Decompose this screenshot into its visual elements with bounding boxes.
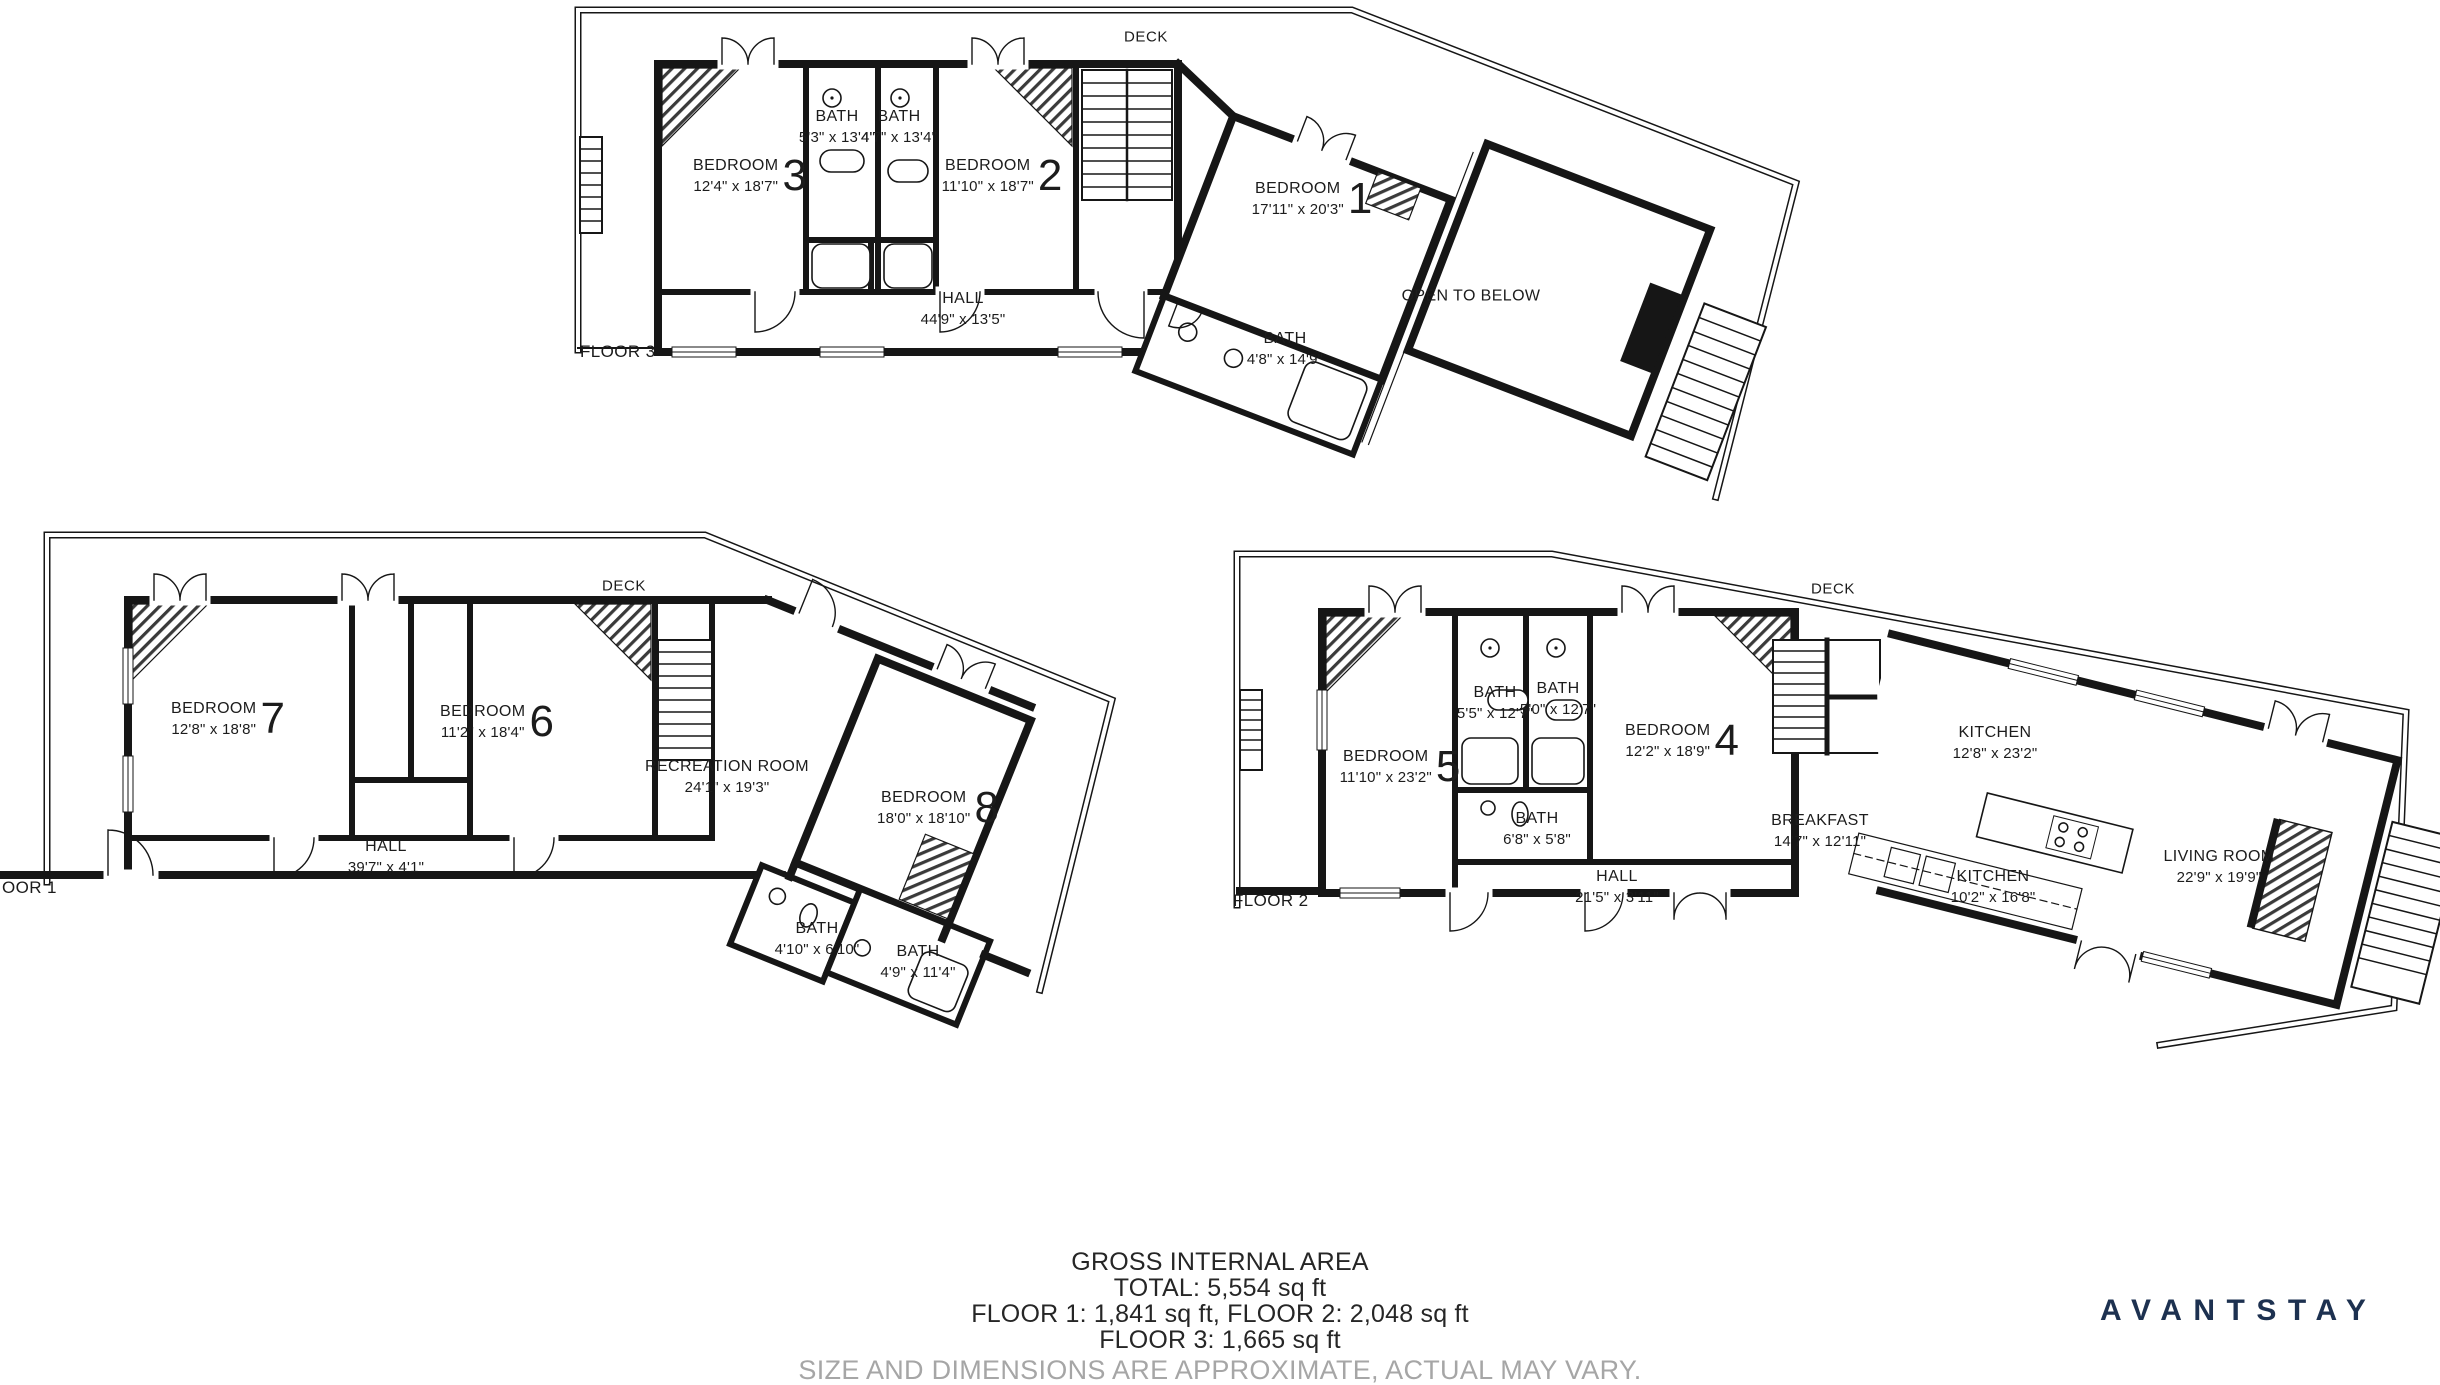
room-label-open-to-below: OPEN TO BELOW <box>1402 287 1541 308</box>
floor3-deck-stairs <box>580 137 602 233</box>
room-label-kitchen-upper: KITCHEN 12'8" x 23'2" <box>1953 723 2038 763</box>
room-number: 4 <box>1715 722 1739 759</box>
footer-floor1-floor2: FLOOR 1: 1,841 sq ft, FLOOR 2: 2,048 sq … <box>0 1301 2440 1327</box>
floor2-tag: FLOOR 2 <box>1233 891 1309 911</box>
room-label-bath-f2c: BATH 6'8" x 5'8" <box>1503 809 1571 849</box>
room-dims: 10'2" x 16'8" <box>1951 888 2036 908</box>
room-number: 1 <box>1348 180 1372 217</box>
room-number: 3 <box>783 157 807 194</box>
footer-title: GROSS INTERNAL AREA <box>0 1249 2440 1275</box>
room-dims: 4'9" x 11'4" <box>880 963 955 983</box>
room-number: 8 <box>974 789 998 826</box>
room-number: 6 <box>530 703 554 740</box>
room-label-bath-f3c: BATH 4'8" x 14'9" <box>1247 329 1323 369</box>
room-label-bedroom-2: BEDROOM 11'10" x 18'7" 2 <box>942 156 1063 196</box>
room-dims: 12'4" x 18'7" <box>693 177 778 197</box>
room-name: BEDROOM <box>877 788 970 809</box>
room-name: BEDROOM <box>171 699 256 720</box>
room-dims: 4'7" x 13'4" <box>861 128 937 148</box>
room-dims: 17'11" x 20'3" <box>1252 200 1344 220</box>
room-dims: 21'5" x 3'11" <box>1575 888 1659 908</box>
room-number: 2 <box>1038 157 1062 194</box>
room-name: HALL <box>348 837 424 858</box>
room-dims: 14'7" x 12'11" <box>1771 832 1869 852</box>
room-name: OPEN TO BELOW <box>1402 287 1541 308</box>
floor-plan-canvas <box>0 0 2440 1372</box>
room-dims: 39'7" x 4'1" <box>348 858 424 878</box>
room-label-bedroom-8: BEDROOM 18'0" x 18'10" 8 <box>877 788 999 828</box>
floor2-staircase <box>1773 640 1880 753</box>
floor3-plan <box>578 10 1796 576</box>
room-label-bedroom-4: BEDROOM 12'2" x 18'9" 4 <box>1625 721 1739 761</box>
room-label-kitchen-lower: KITCHEN 10'2" x 16'8" <box>1951 867 2036 907</box>
room-name: KITCHEN <box>1951 867 2036 888</box>
room-label-bedroom-1: BEDROOM 17'11" x 20'3" 1 <box>1252 179 1373 219</box>
room-dims: 18'0" x 18'10" <box>877 809 970 829</box>
floor2-wing <box>1824 607 2440 1051</box>
room-label-living-room: LIVING ROOM 22'9" x 19'9" <box>2163 847 2274 887</box>
room-label-bedroom-5: BEDROOM 11'10" x 23'2" 5 <box>1340 747 1461 787</box>
room-name: KITCHEN <box>1953 723 2038 744</box>
footer-floor3: FLOOR 3: 1,665 sq ft <box>0 1327 2440 1353</box>
gross-internal-area-block: GROSS INTERNAL AREA TOTAL: 5,554 sq ft F… <box>0 1249 2440 1385</box>
room-dims: 5'0" x 12'7" <box>1520 700 1596 720</box>
room-label-hall-f2: HALL 21'5" x 3'11" <box>1575 867 1659 907</box>
room-dims: 11'10" x 23'2" <box>1340 768 1432 788</box>
room-label-breakfast: BREAKFAST 14'7" x 12'11" <box>1771 811 1869 851</box>
room-name: BEDROOM <box>1252 179 1344 200</box>
floor3-staircase <box>1082 70 1172 200</box>
room-name: BATH <box>775 919 860 940</box>
room-label-hall-f3: HALL 44'9" x 13'5" <box>921 289 1006 329</box>
room-dims: 4'10" x 6'10" <box>775 940 860 960</box>
footer-disclaimer: SIZE AND DIMENSIONS ARE APPROXIMATE, ACT… <box>0 1355 2440 1385</box>
room-name: BATH <box>1503 809 1571 830</box>
room-name: BATH <box>861 107 937 128</box>
room-dims: 22'9" x 19'9" <box>2163 868 2274 888</box>
room-label-bedroom-7: BEDROOM 12'8" x 18'8" 7 <box>171 699 285 739</box>
room-name: LIVING ROOM <box>2163 847 2274 868</box>
room-dims: 6'8" x 5'8" <box>1503 830 1571 850</box>
floor2-deck-stairs <box>1240 690 1262 770</box>
floor2-plan <box>1237 554 2440 1051</box>
floor1-deck-label: DECK <box>602 578 646 595</box>
room-dims: 11'10" x 18'7" <box>942 177 1034 197</box>
room-dims: 11'2" x 18'4" <box>440 723 525 743</box>
room-label-hall-f1: HALL 39'7" x 4'1" <box>348 837 424 877</box>
room-label-bath-f1b: BATH 4'9" x 11'4" <box>880 942 955 982</box>
room-name: RECREATION ROOM <box>645 757 809 778</box>
room-name: BATH <box>1247 329 1323 350</box>
floor3-tag: FLOOR 3 <box>580 342 656 362</box>
room-label-bath-f1a: BATH 4'10" x 6'10" <box>775 919 860 959</box>
footer-total: TOTAL: 5,554 sq ft <box>0 1275 2440 1301</box>
room-number: 5 <box>1436 748 1460 785</box>
room-name: BEDROOM <box>1340 747 1432 768</box>
floor1-tag: OOR 1 <box>2 878 57 898</box>
room-name: BEDROOM <box>942 156 1034 177</box>
room-name: BATH <box>880 942 955 963</box>
room-label-bedroom-3: BEDROOM 12'4" x 18'7" 3 <box>693 156 807 196</box>
room-label-recreation-room: RECREATION ROOM 24'1" x 19'3" <box>645 757 809 797</box>
floor2-deck-label: DECK <box>1811 581 1855 598</box>
room-label-bath-f2b: BATH 5'0" x 12'7" <box>1520 679 1596 719</box>
room-name: BEDROOM <box>440 702 525 723</box>
room-number: 7 <box>261 700 285 737</box>
room-dims: 44'9" x 13'5" <box>921 310 1006 330</box>
room-name: BEDROOM <box>693 156 778 177</box>
room-dims: 4'8" x 14'9" <box>1247 350 1323 370</box>
room-name: BEDROOM <box>1625 721 1710 742</box>
room-dims: 12'2" x 18'9" <box>1625 742 1710 762</box>
room-name: HALL <box>921 289 1006 310</box>
room-label-bath-f3b: BATH 4'7" x 13'4" <box>861 107 937 147</box>
room-name: BREAKFAST <box>1771 811 1869 832</box>
floor1-staircase <box>658 640 712 760</box>
room-dims: 12'8" x 18'8" <box>171 720 256 740</box>
room-label-bedroom-6: BEDROOM 11'2" x 18'4" 6 <box>440 702 554 742</box>
room-dims: 24'1" x 19'3" <box>645 778 809 798</box>
floor3-deck-label: DECK <box>1124 29 1168 46</box>
room-dims: 12'8" x 23'2" <box>1953 744 2038 764</box>
avantstay-logo: AVANTSTAY <box>2100 1294 2377 1328</box>
room-name: BATH <box>1520 679 1596 700</box>
room-name: HALL <box>1575 867 1659 888</box>
